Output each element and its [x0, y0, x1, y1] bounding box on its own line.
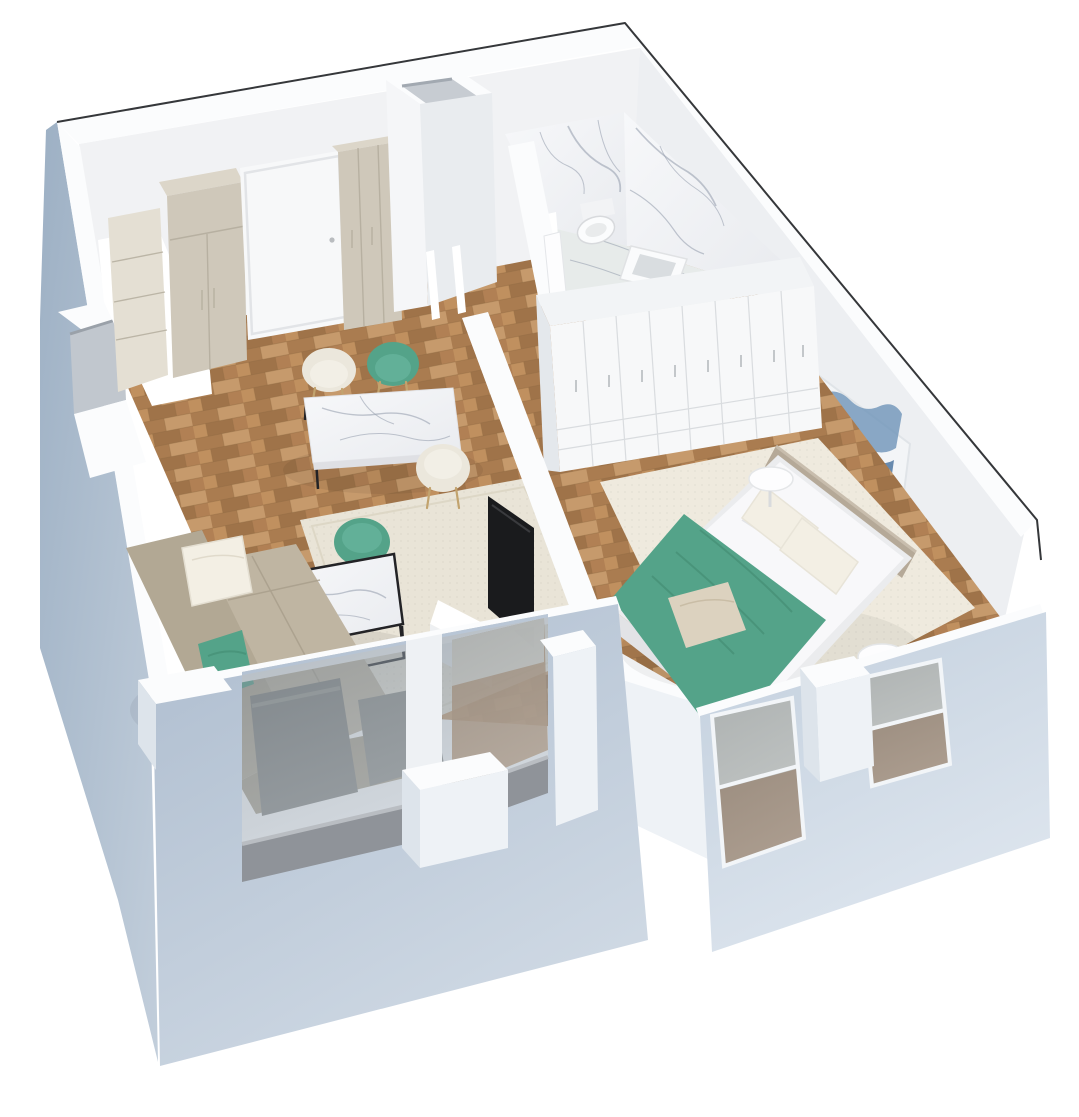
- tall-cabinet-a-front: [167, 182, 247, 378]
- bedroom-window-pillar: [800, 656, 874, 782]
- door-handle: [329, 237, 334, 242]
- apartment-3d-floorplan: [0, 0, 1079, 1117]
- floorplan-stage: [0, 0, 1079, 1117]
- vent-shaft-column: [386, 70, 497, 312]
- entrance-door: [240, 150, 350, 340]
- middle-pillar: [402, 752, 508, 868]
- kitchen-open-shelving: [108, 208, 168, 392]
